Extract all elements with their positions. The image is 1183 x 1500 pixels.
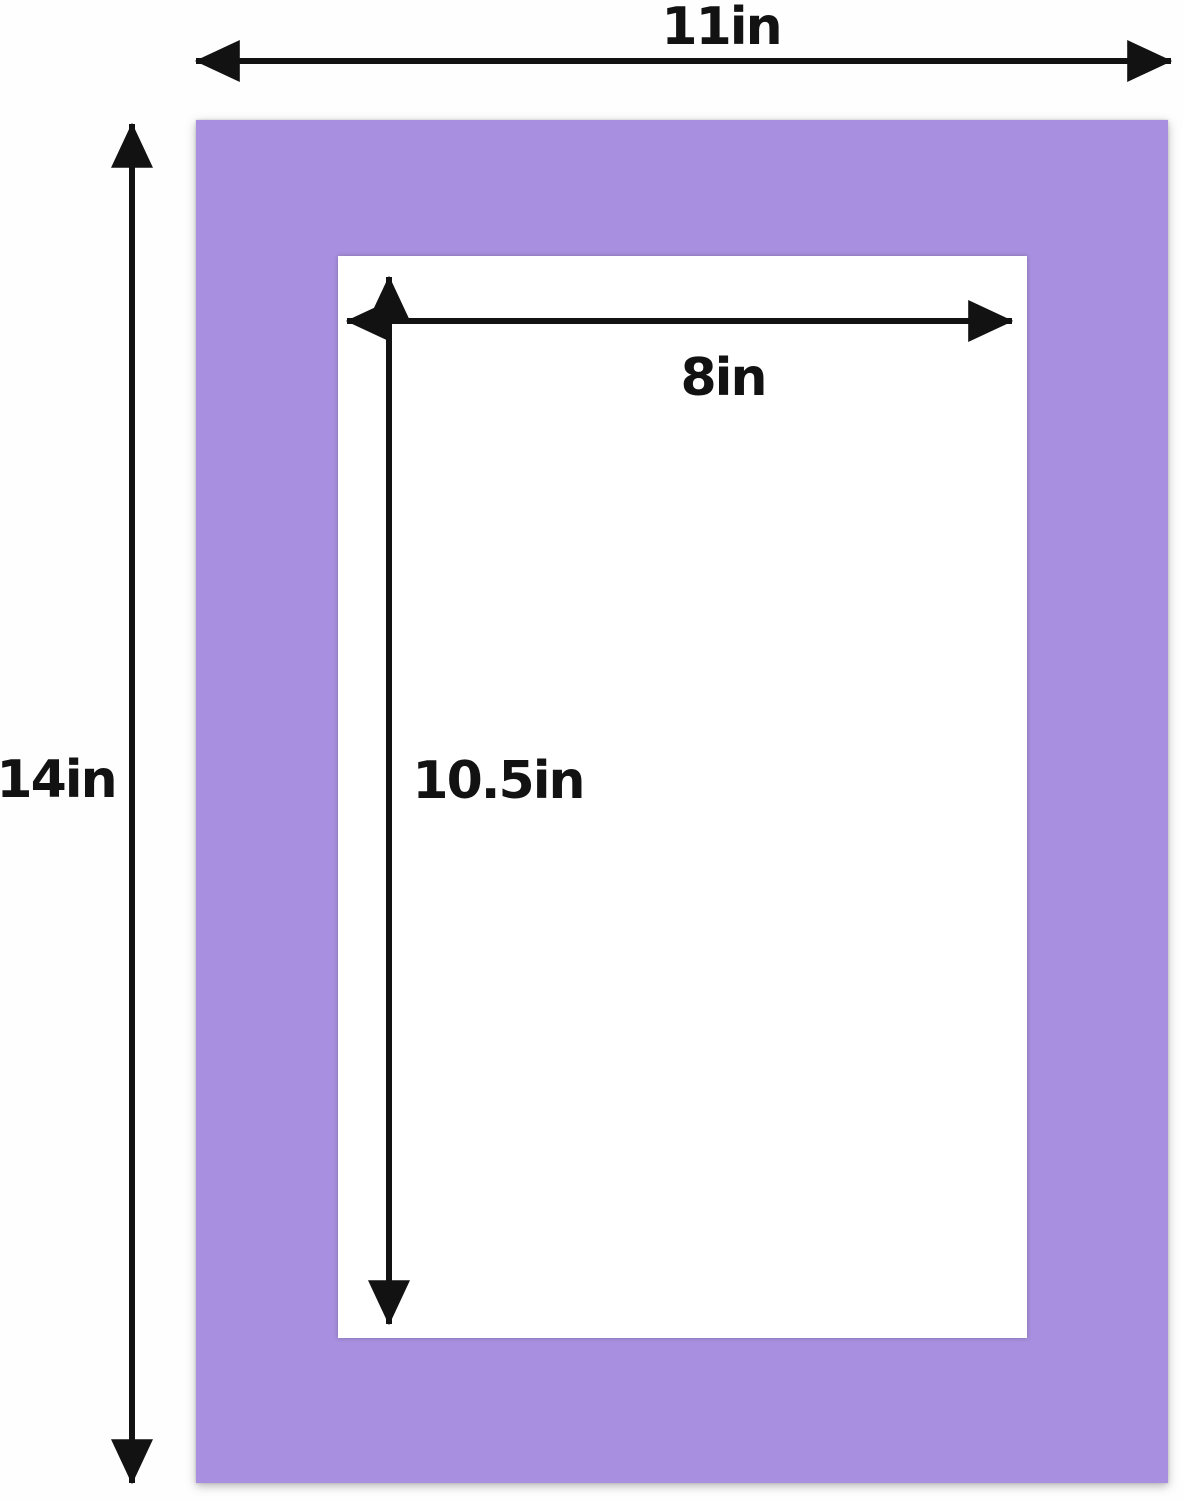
outer-width-label: 11in (661, 1, 780, 53)
outer-height-label: 14in (0, 754, 116, 806)
opening-height-label: 10.5in (412, 755, 583, 807)
opening-width-label: 8in (680, 352, 765, 404)
dimension-arrows (0, 0, 1183, 1500)
diagram-canvas: 11in 14in 8in 10.5in (0, 0, 1183, 1500)
